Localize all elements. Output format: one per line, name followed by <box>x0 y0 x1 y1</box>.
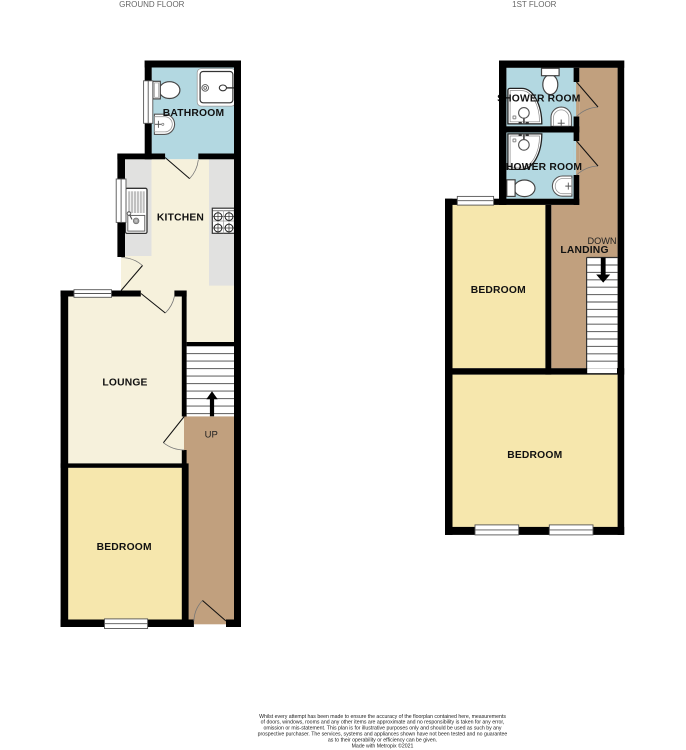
svg-text:GROUND FLOOR: GROUND FLOOR <box>119 0 185 9</box>
svg-text:LANDING: LANDING <box>560 245 608 256</box>
svg-text:DOWN: DOWN <box>587 236 616 246</box>
svg-text:SHOWER ROOM: SHOWER ROOM <box>497 93 580 104</box>
svg-text:LOUNGE: LOUNGE <box>102 377 147 388</box>
svg-text:BEDROOM: BEDROOM <box>471 285 526 296</box>
svg-text:KITCHEN: KITCHEN <box>157 213 204 224</box>
svg-text:BEDROOM: BEDROOM <box>97 542 152 553</box>
svg-text:UP: UP <box>205 429 218 440</box>
svg-text:Made with Metropix ©2021: Made with Metropix ©2021 <box>352 742 414 749</box>
svg-text:BEDROOM: BEDROOM <box>507 450 562 461</box>
svg-text:BATHROOM: BATHROOM <box>163 108 224 119</box>
svg-text:SHOWER ROOM: SHOWER ROOM <box>499 162 582 173</box>
svg-text:1ST FLOOR: 1ST FLOOR <box>512 0 557 9</box>
